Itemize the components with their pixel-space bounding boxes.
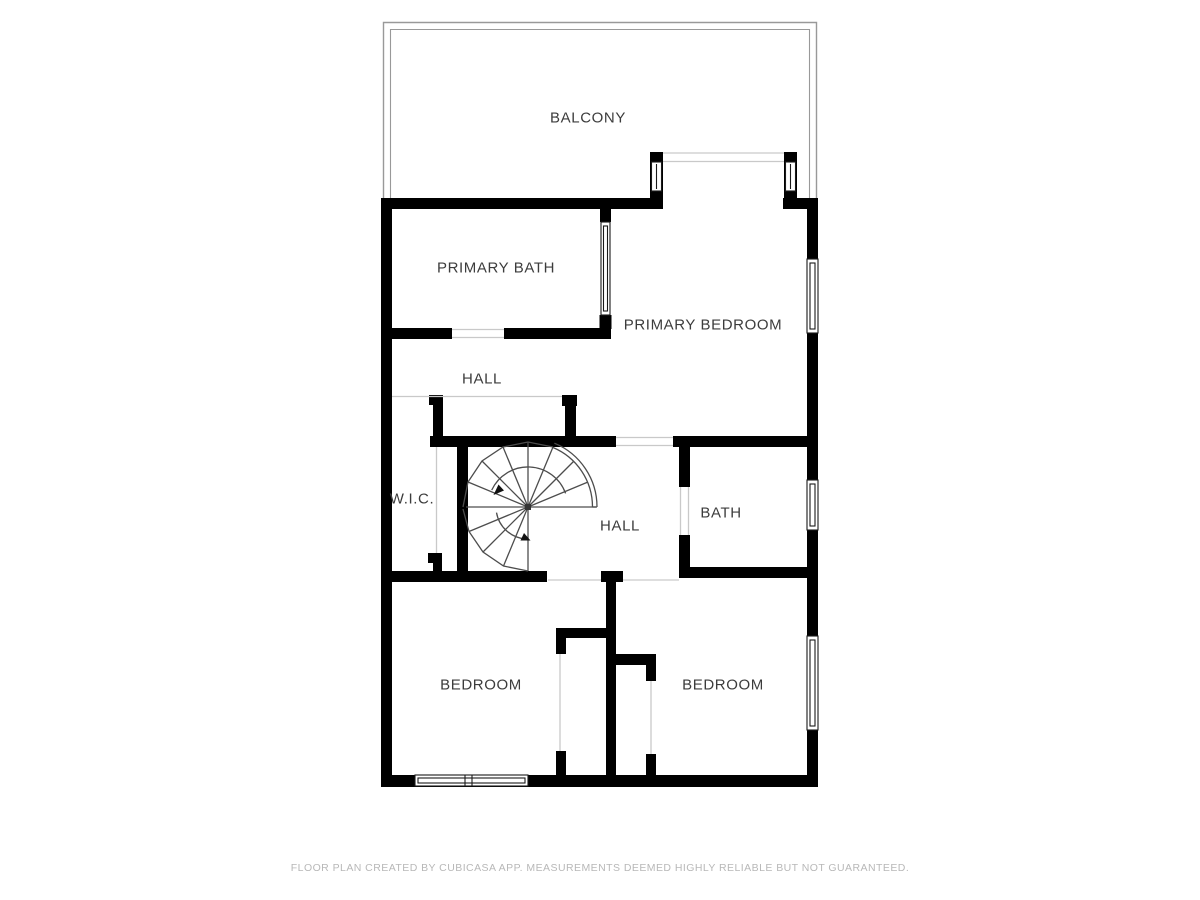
room-label-primary-bath: PRIMARY BATH <box>437 260 555 277</box>
room-label-bedroom-left: BEDROOM <box>440 677 522 694</box>
doors <box>601 162 796 315</box>
opening-lines <box>392 153 784 754</box>
window-bedroom-right <box>807 636 818 730</box>
wall-stair-bottom <box>381 571 547 582</box>
primary-bath-pocket-door <box>601 222 610 315</box>
floor-plan-drawing <box>0 0 1200 900</box>
stair-direction-arrow-down <box>521 533 531 541</box>
footer-disclaimer: FLOOR PLAN CREATED BY CUBICASA APP. MEAS… <box>0 862 1200 874</box>
balcony-sliding-door <box>652 162 796 191</box>
window-bedroom-left-bottom <box>415 775 528 786</box>
room-label-bath: BATH <box>700 505 741 522</box>
room-label-balcony: BALCONY <box>550 110 626 127</box>
room-label-hall-lower: HALL <box>600 518 640 535</box>
wall-stair-left <box>457 436 468 582</box>
room-label-primary-bedroom: PRIMARY BEDROOM <box>624 317 782 334</box>
room-label-wic: W.I.C. <box>390 491 434 508</box>
room-label-bedroom-right: BEDROOM <box>682 677 764 694</box>
room-label-hall-upper: HALL <box>462 371 502 388</box>
window-primary-bedroom <box>807 259 818 333</box>
wall-divider-cap <box>600 315 612 329</box>
stair-center-post <box>525 504 531 510</box>
wall-bedroom-divider <box>606 582 616 775</box>
floor-plan-page: BALCONY PRIMARY BATH PRIMARY BEDROOM HAL… <box>0 0 1200 900</box>
wall-bath-bottom <box>679 567 818 578</box>
window-bath <box>807 480 818 530</box>
stair-direction-arrow-up <box>494 485 505 496</box>
spiral-staircase <box>463 442 597 571</box>
wall-divider-top <box>600 198 611 222</box>
wall-top-left <box>381 198 663 209</box>
